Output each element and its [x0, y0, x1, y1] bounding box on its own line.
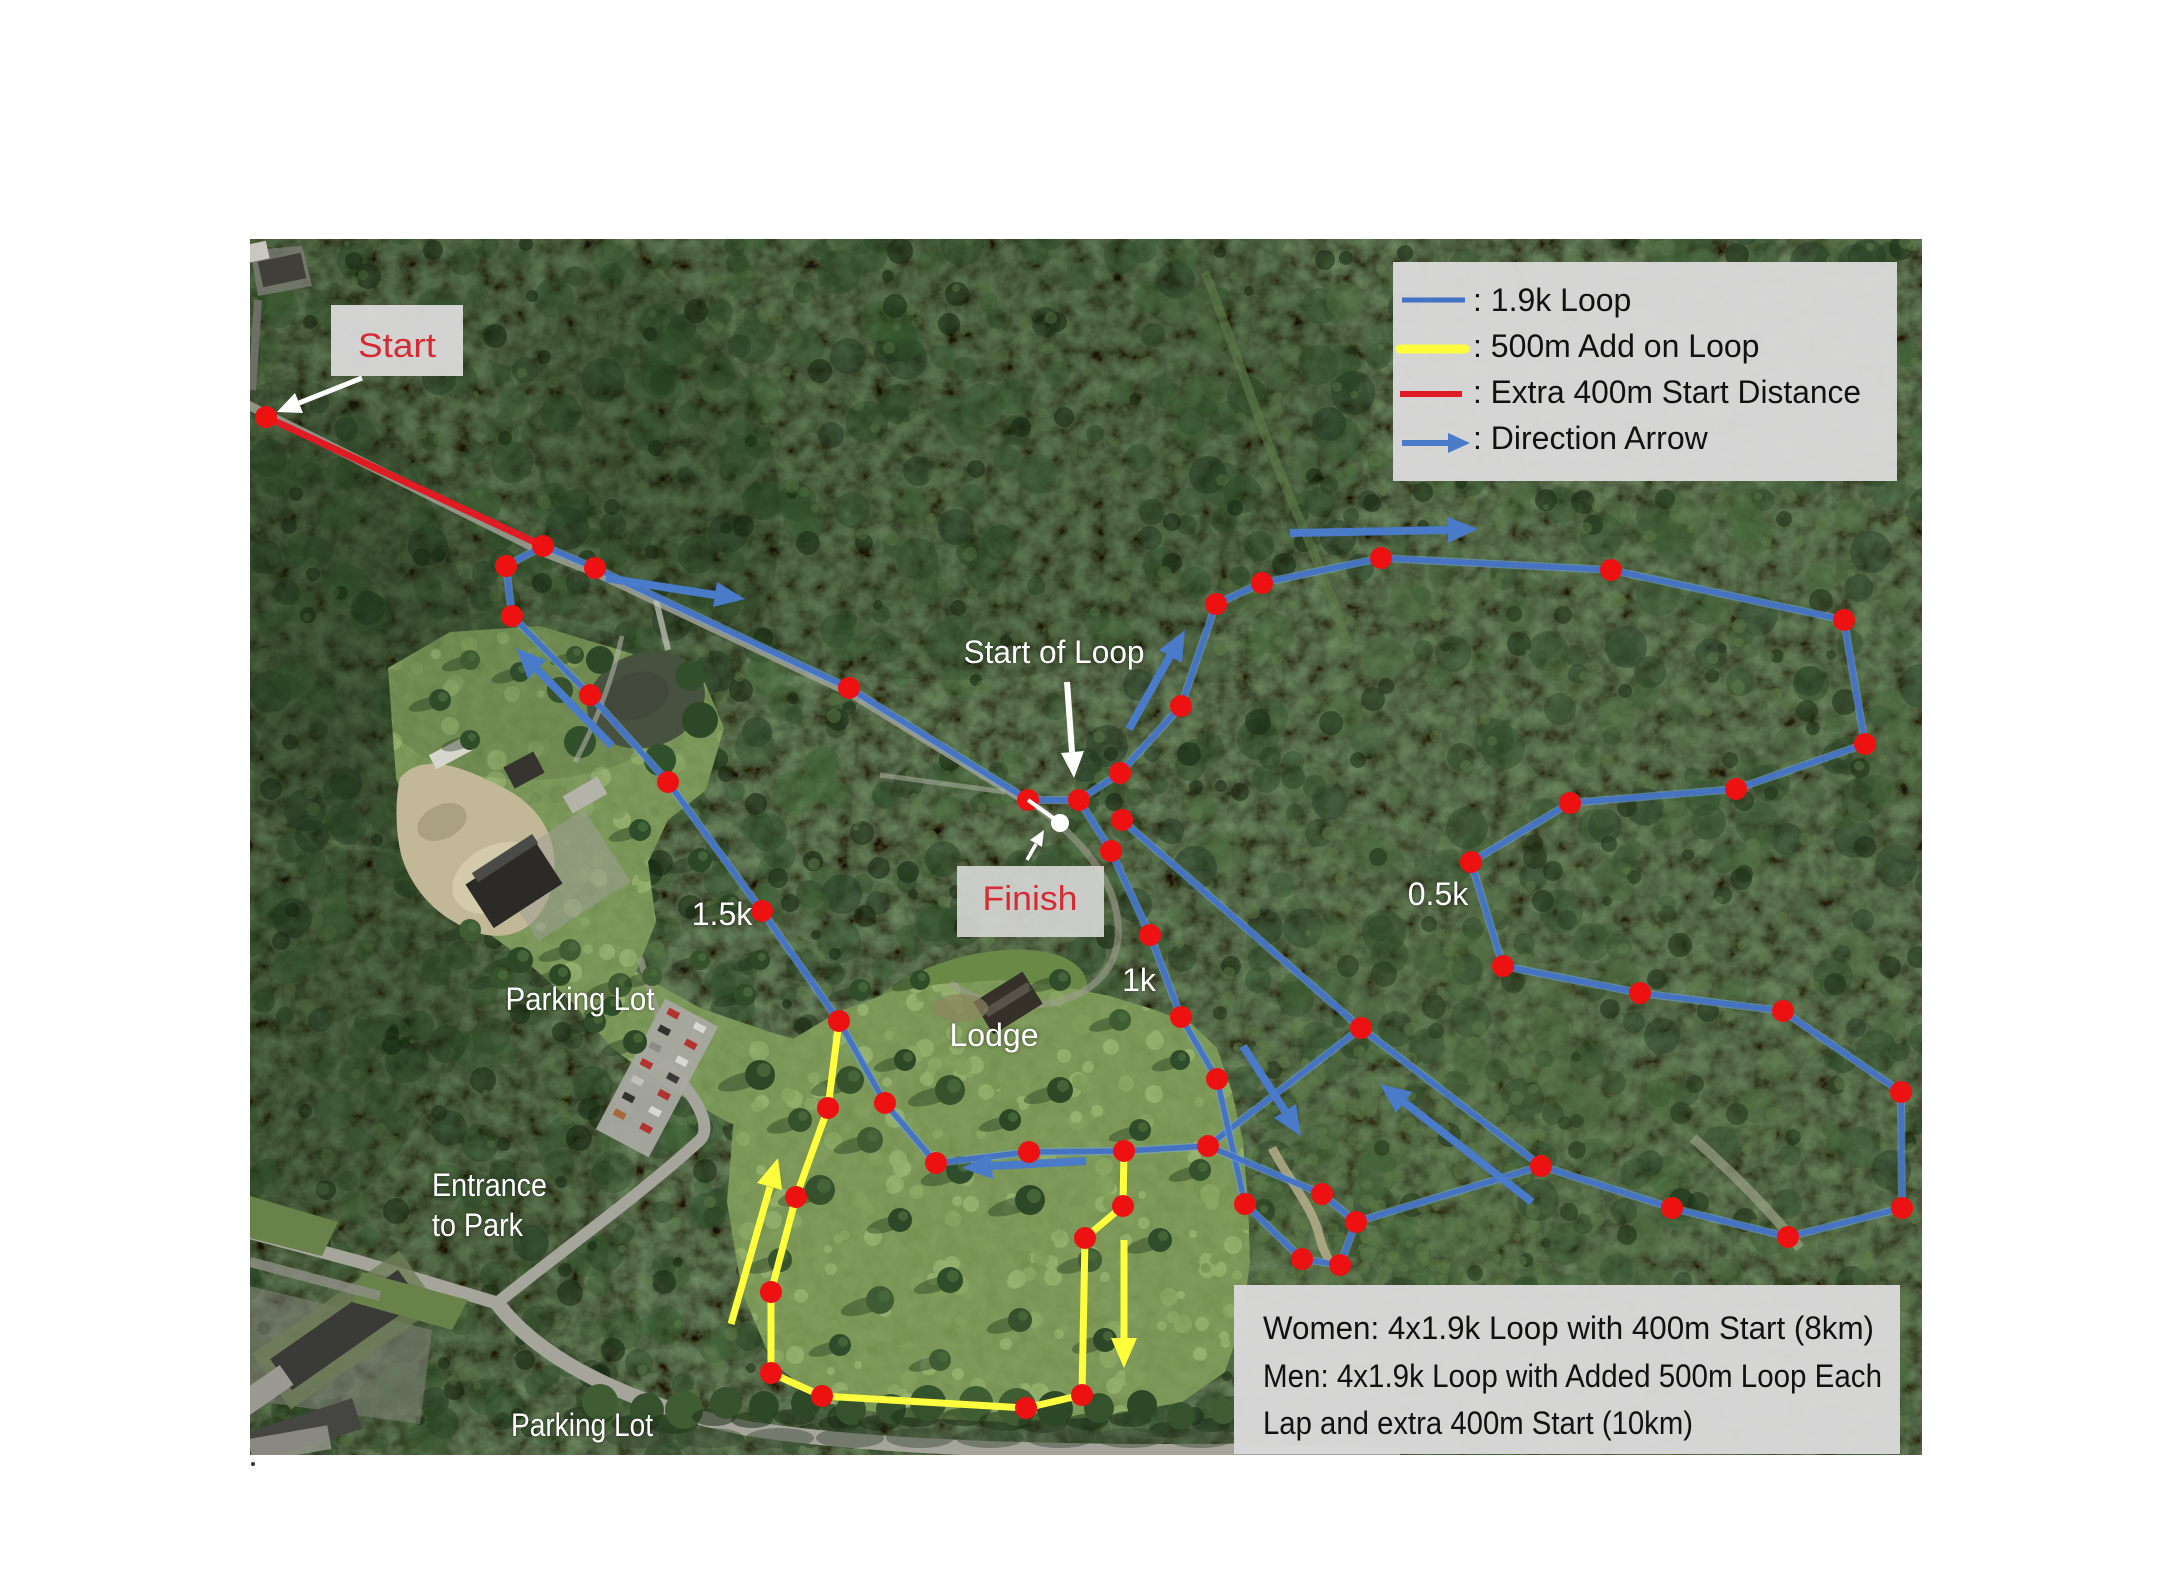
svg-text:: 1.9k Loop: : 1.9k Loop: [1473, 282, 1631, 318]
svg-text:Finish: Finish: [983, 880, 1078, 918]
svg-text:Parking Lot: Parking Lot: [511, 1407, 653, 1443]
svg-text:Lap and extra 400m Start (10km: Lap and extra 400m Start (10km): [1263, 1405, 1693, 1441]
svg-text:Women: 4x1.9k Loop with 400m S: Women: 4x1.9k Loop with 400m Start (8km): [1263, 1310, 1874, 1346]
svg-text:0.5k: 0.5k: [1408, 876, 1469, 912]
svg-text:Men: 4x1.9k Loop with Added 50: Men: 4x1.9k Loop with Added 500m Loop Ea…: [1263, 1358, 1882, 1394]
svg-text:Lodge: Lodge: [950, 1017, 1039, 1053]
svg-text:: Extra 400m Start Distance: : Extra 400m Start Distance: [1473, 374, 1861, 410]
svg-text:: Direction Arrow: : Direction Arrow: [1473, 420, 1709, 456]
svg-text:Start of Loop: Start of Loop: [964, 634, 1145, 670]
svg-text:1k: 1k: [1122, 962, 1157, 998]
svg-text:Start: Start: [358, 327, 437, 365]
svg-text:1.5k: 1.5k: [692, 896, 753, 932]
svg-text:: 500m Add on Loop: : 500m Add on Loop: [1473, 328, 1759, 364]
svg-text:Parking Lot: Parking Lot: [506, 981, 655, 1017]
svg-text:Entrance: Entrance: [432, 1167, 547, 1203]
svg-text:to Park: to Park: [432, 1207, 524, 1243]
